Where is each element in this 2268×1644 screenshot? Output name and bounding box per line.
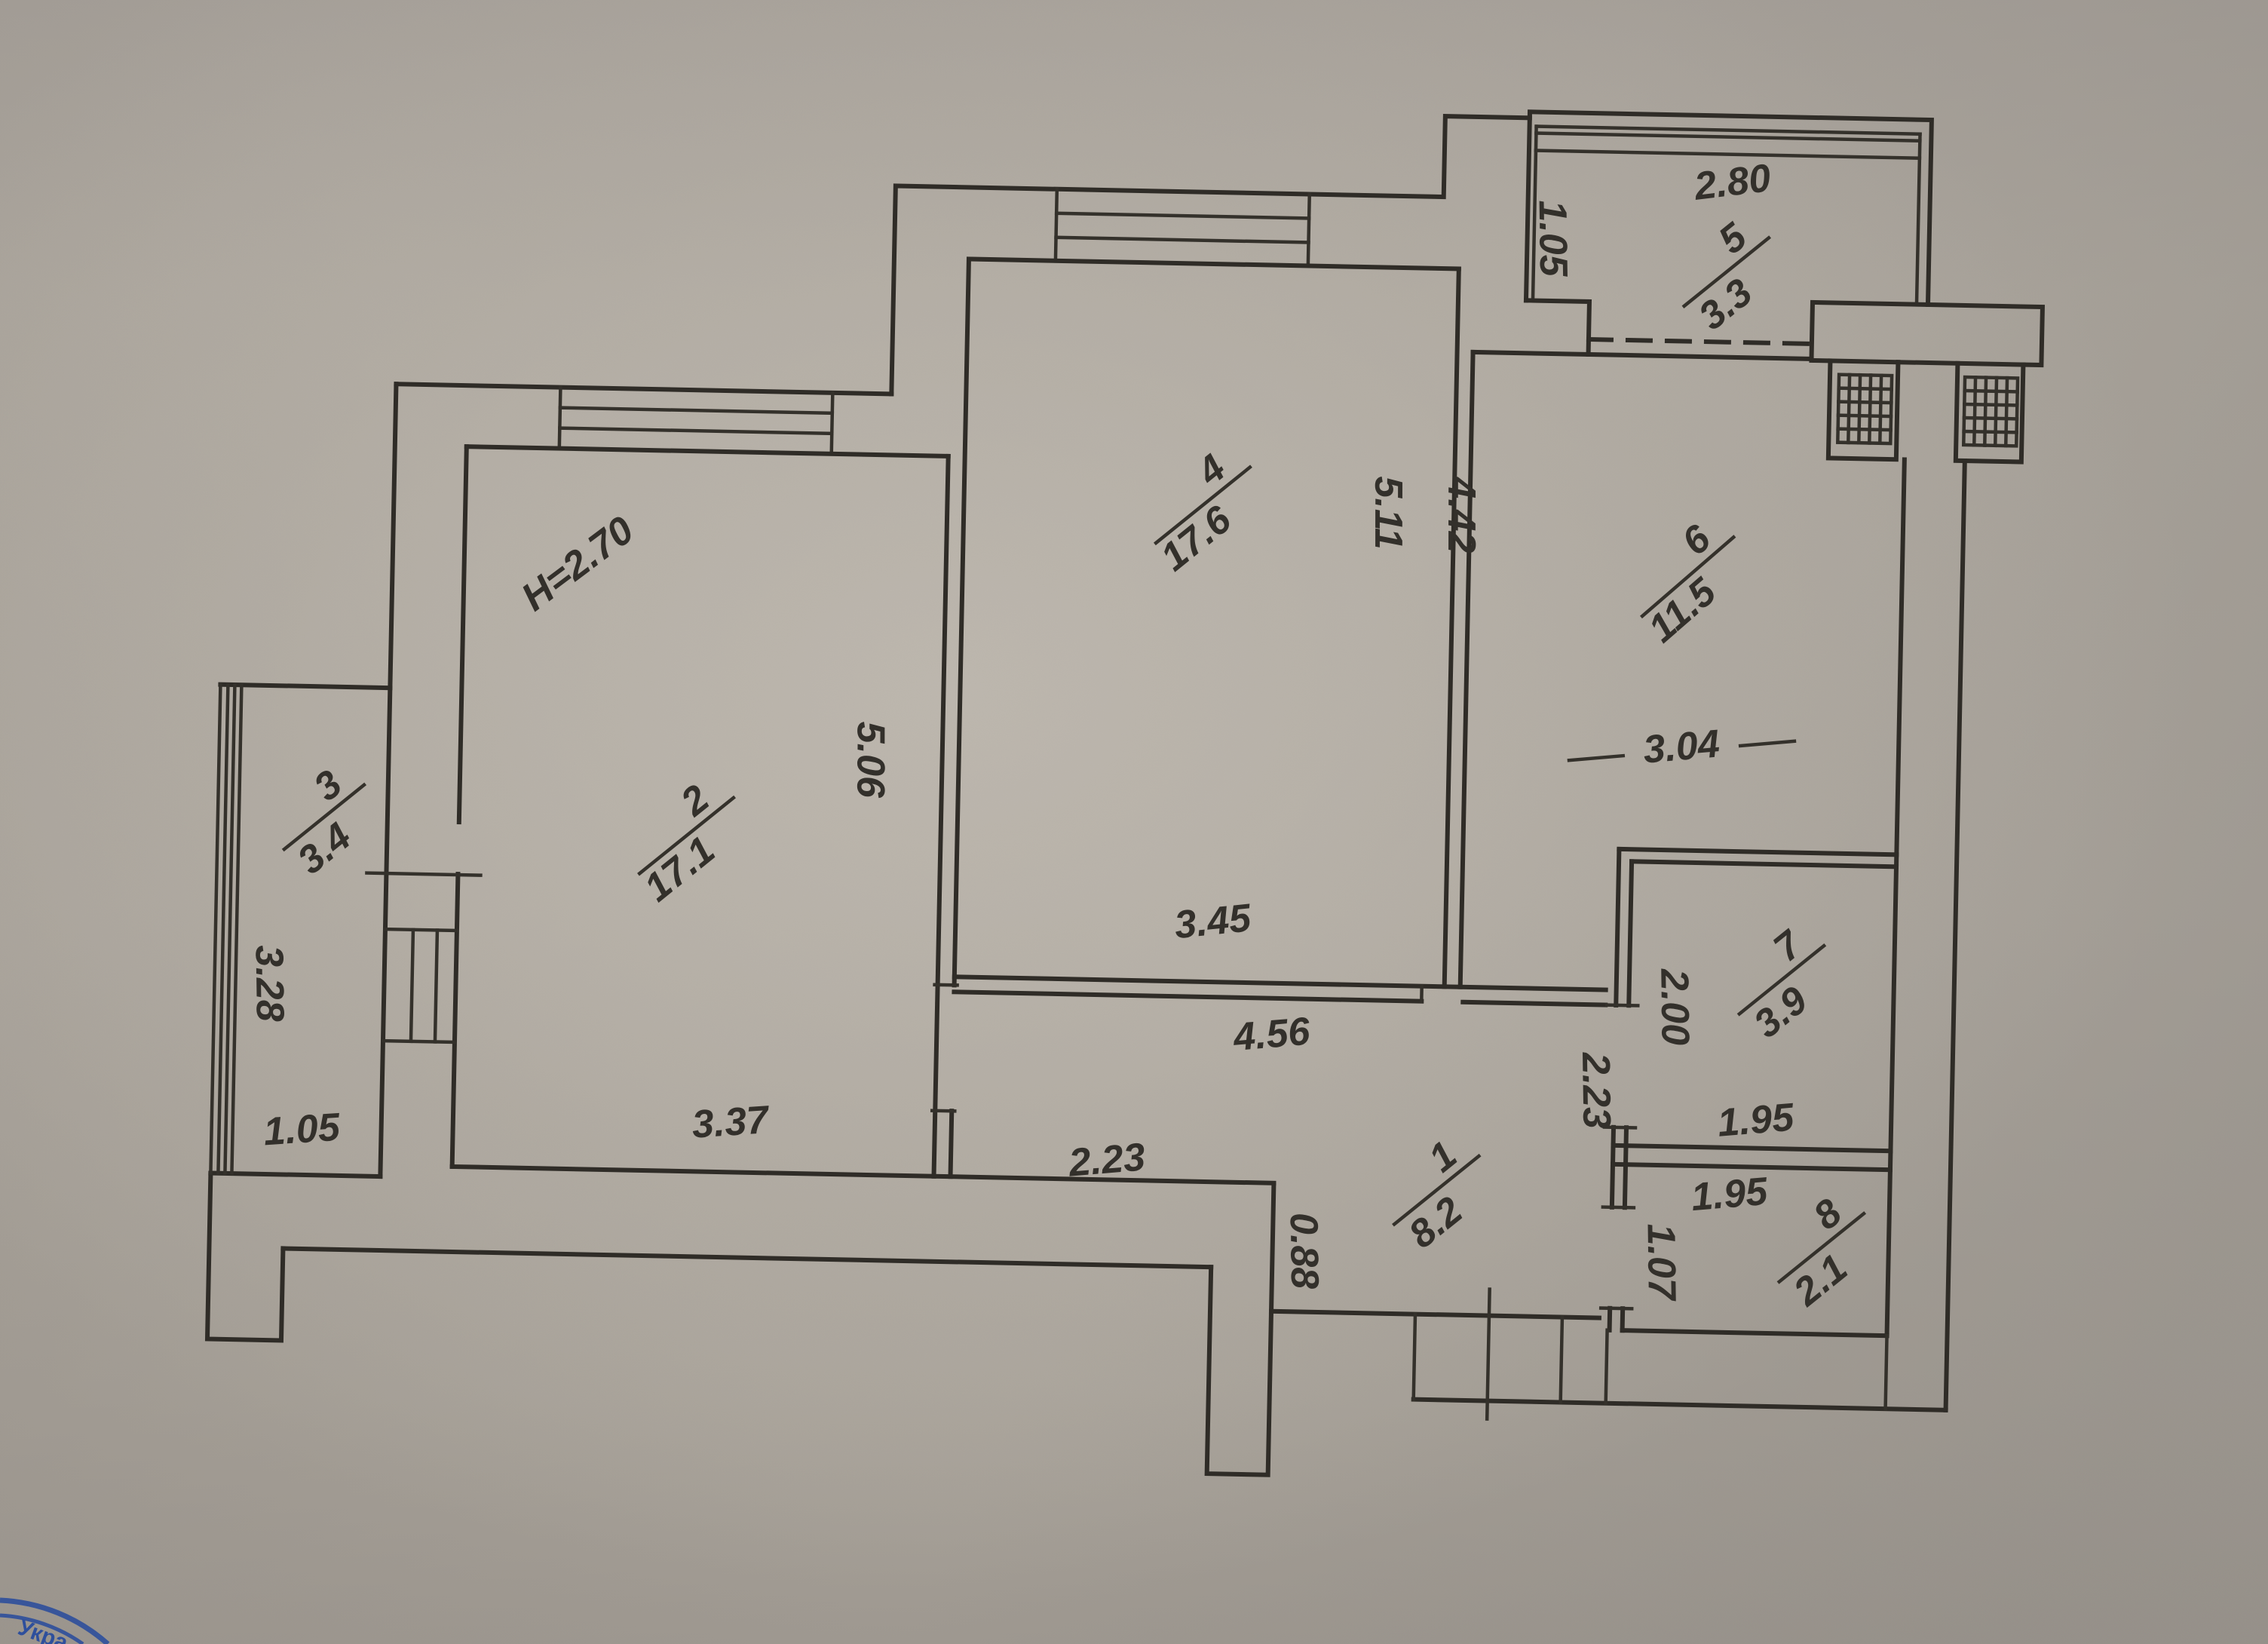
svg-text:4.42: 4.42: [1439, 476, 1483, 553]
svg-text:3.28: 3.28: [247, 945, 291, 1022]
svg-text:3.04: 3.04: [1641, 722, 1721, 771]
svg-text:2.23: 2.23: [1574, 1051, 1619, 1129]
svg-text:5.06: 5.06: [848, 722, 892, 799]
svg-text:5.11: 5.11: [1366, 476, 1410, 550]
svg-text:1.05: 1.05: [262, 1106, 342, 1155]
svg-text:3.37: 3.37: [691, 1098, 771, 1147]
svg-text:1.95: 1.95: [1716, 1095, 1797, 1145]
svg-text:1.05: 1.05: [1531, 200, 1576, 278]
svg-text:4.56: 4.56: [1231, 1010, 1313, 1060]
svg-text:2.00: 2.00: [1652, 968, 1697, 1045]
svg-text:2.23: 2.23: [1066, 1135, 1147, 1185]
svg-text:1.95: 1.95: [1690, 1170, 1770, 1219]
svg-text:1.07: 1.07: [1638, 1223, 1684, 1302]
svg-text:2.80: 2.80: [1691, 156, 1773, 209]
svg-text:3.45: 3.45: [1172, 896, 1254, 947]
svg-text:0.88: 0.88: [1282, 1213, 1326, 1290]
